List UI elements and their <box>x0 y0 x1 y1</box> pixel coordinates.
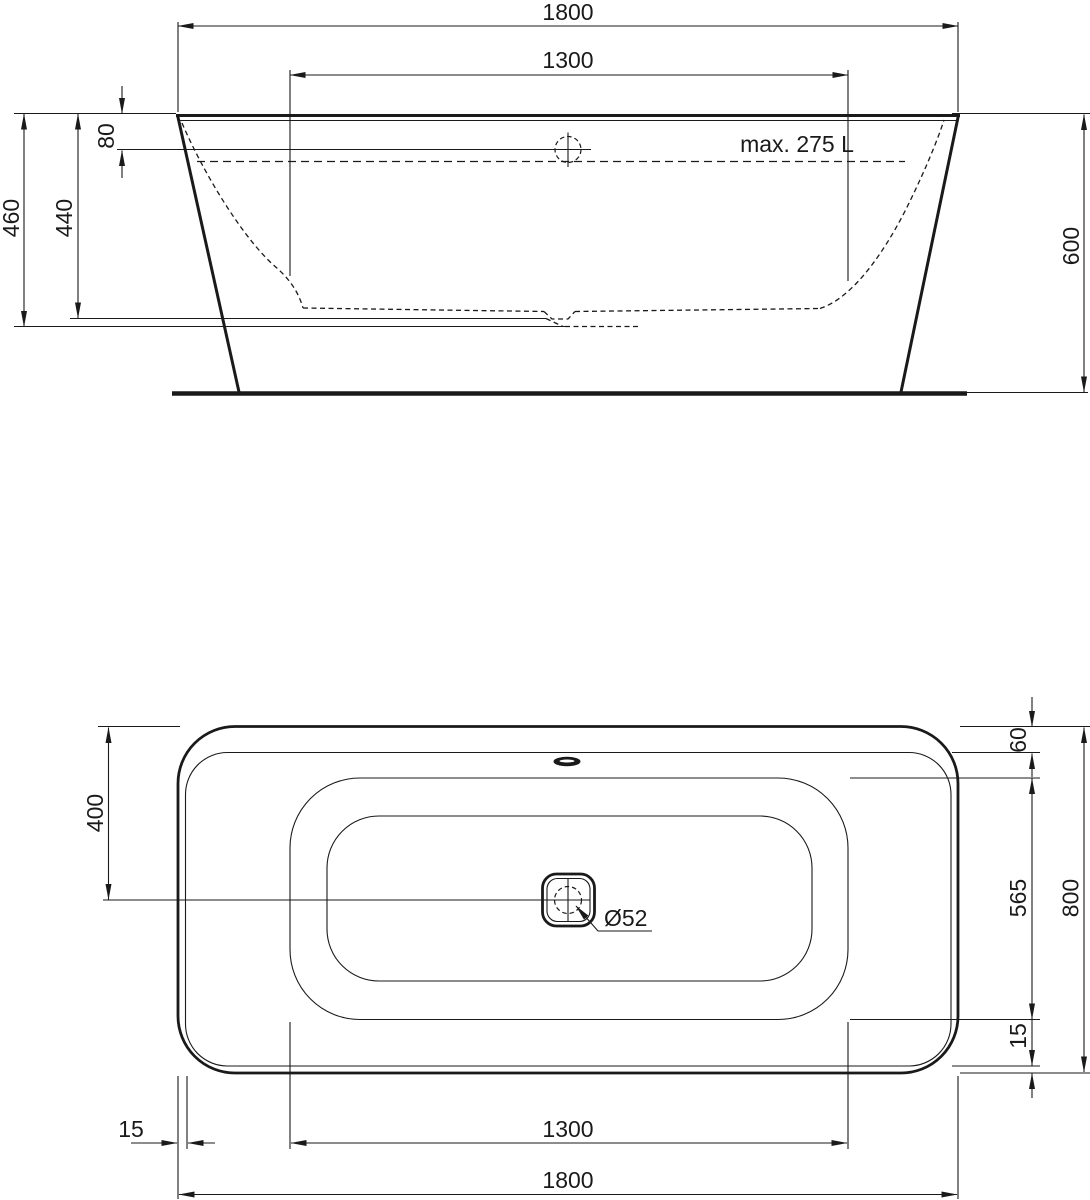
technical-drawing-page: 1800 1300 max. 275 L <box>0 0 1090 1200</box>
water-level: max. 275 L <box>197 131 905 162</box>
plan-basin-edge <box>290 778 848 1020</box>
plan-right-extension-lines <box>850 727 1090 1074</box>
side-dim-overall-length-label: 1800 <box>542 0 593 25</box>
drain-diameter-label: Ø52 <box>604 905 647 931</box>
plan-dim-rim-lip-right: 15 <box>1005 1020 1032 1098</box>
plan-dim-basin-inner-width: 565 <box>1005 779 1032 1020</box>
side-dim-inner-depth: 440 <box>51 114 563 327</box>
plan-dim-overall-width-label: 800 <box>1058 879 1084 917</box>
plan-dim-overall-length-label: 1800 <box>542 1167 593 1193</box>
plan-dim-rim-lip-left-label: 15 <box>118 1116 144 1142</box>
plan-dim-basin-inner-length-label: 1300 <box>542 1116 593 1142</box>
side-dim-overflow-offset-label: 80 <box>93 123 119 149</box>
plan-dim-overall-width: 800 <box>1058 728 1085 1073</box>
side-dim-total-height-label: 600 <box>1058 227 1084 265</box>
side-view: 1800 1300 max. 275 L <box>0 0 1090 394</box>
side-dim-inner-length-label: 1300 <box>542 47 593 73</box>
plan-overflow-slot <box>554 757 581 767</box>
plan-view: Ø52 400 60 565 <box>82 697 1090 1199</box>
plan-dim-center-offset-label: 400 <box>82 794 108 832</box>
bathtub-drawing-canvas: 1800 1300 max. 275 L <box>0 0 1090 1200</box>
left-wall <box>178 115 240 392</box>
side-dim-outer-height-label: 460 <box>0 199 24 237</box>
side-dim-overflow-offset: 80 <box>14 86 176 178</box>
plan-dim-head-rim-width: 60 <box>1005 697 1032 777</box>
drain-recess-profile <box>544 312 575 320</box>
plan-dim-basin-inner-length: 1300 <box>291 1116 847 1143</box>
capacity-label: max. 275 L <box>740 131 854 157</box>
plan-dim-rim-lip-right-label: 15 <box>1005 1023 1031 1049</box>
side-dim-inner-length: 1300 <box>290 47 848 281</box>
side-dim-inner-depth-label: 440 <box>51 199 77 237</box>
plan-dim-head-rim-width-label: 60 <box>1005 727 1031 753</box>
plan-dim-rim-lip-left: 15 <box>118 1116 215 1143</box>
plan-dim-overall-length: 1800 <box>179 1167 957 1195</box>
plan-dim-basin-inner-width-label: 565 <box>1005 879 1031 917</box>
side-dim-total-height: 600 <box>952 114 1090 393</box>
plan-dim-center-offset: 400 <box>82 727 180 900</box>
plan-basin-floor <box>327 816 812 981</box>
